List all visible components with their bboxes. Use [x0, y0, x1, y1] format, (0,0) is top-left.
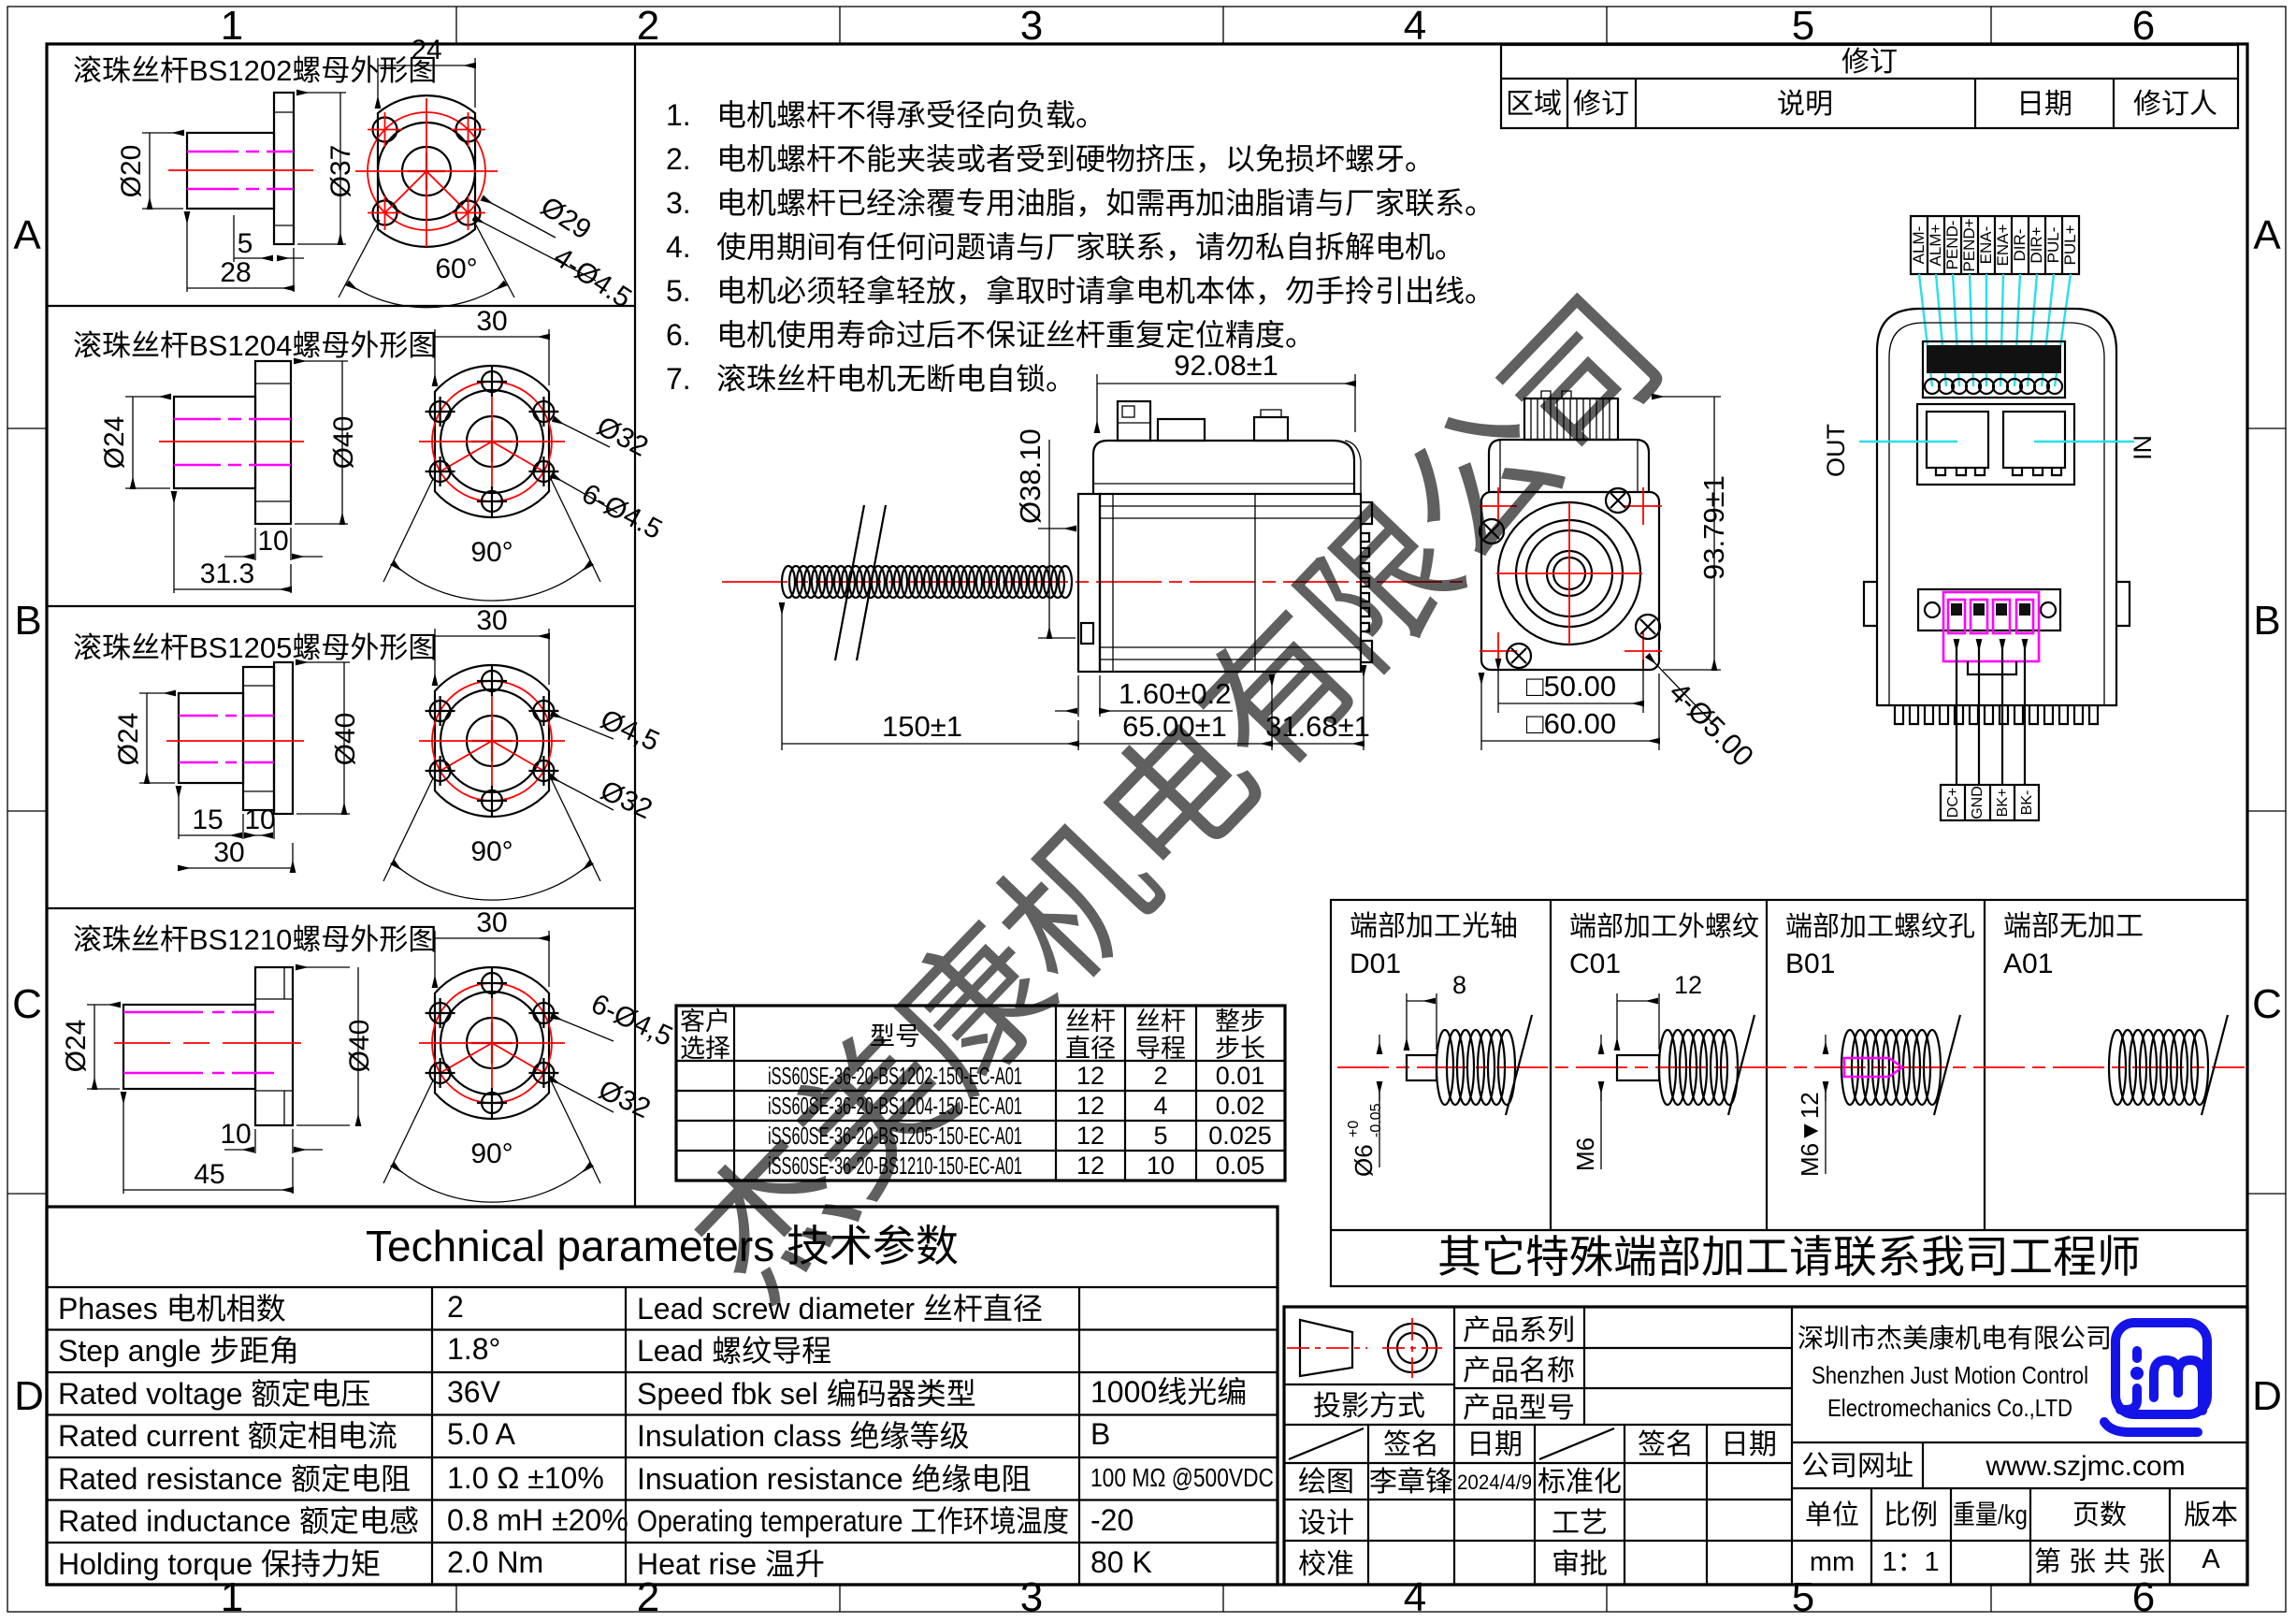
svg-text:ALM+: ALM+ — [1927, 224, 1944, 266]
svg-text:Ø40: Ø40 — [330, 713, 361, 766]
svg-text:2: 2 — [637, 3, 659, 49]
svg-text:Rated resistance 额定电阻: Rated resistance 额定电阻 — [58, 1462, 411, 1496]
svg-text:电机必须轻拿轻放，拿取时请拿电机本体，勿手拎引出线。: 电机必须轻拿轻放，拿取时请拿电机本体，勿手拎引出线。 — [716, 274, 1495, 308]
svg-text:步长: 步长 — [1215, 1035, 1265, 1063]
svg-text:7.: 7. — [666, 362, 691, 396]
svg-text:5: 5 — [238, 228, 253, 259]
svg-text:Ø24: Ø24 — [99, 416, 130, 470]
svg-text:93.79±1: 93.79±1 — [1697, 475, 1730, 580]
svg-text:产品系列: 产品系列 — [1463, 1315, 1575, 1346]
svg-text:Step angle 步距角: Step angle 步距角 — [58, 1334, 299, 1368]
svg-text:5: 5 — [1792, 1574, 1814, 1620]
svg-text:92.08±1: 92.08±1 — [1174, 349, 1278, 382]
svg-text:工艺: 工艺 — [1552, 1508, 1608, 1539]
svg-text:滚珠丝杆电机无断电自锁。: 滚珠丝杆电机无断电自锁。 — [716, 362, 1076, 396]
svg-text:1000线光编: 1000线光编 — [1090, 1375, 1247, 1409]
svg-text:电机螺杆不能夹装或者受到硬物挤压，以免损坏螺牙。: 电机螺杆不能夹装或者受到硬物挤压，以免损坏螺牙。 — [716, 142, 1435, 176]
svg-text:日期: 日期 — [1466, 1429, 1523, 1460]
svg-text:5.0 A: 5.0 A — [447, 1417, 516, 1451]
svg-text:标准化: 标准化 — [1538, 1467, 1622, 1498]
svg-text:3: 3 — [1020, 1574, 1043, 1620]
svg-text:Ø6: Ø6 — [1350, 1144, 1378, 1177]
svg-text:Insulation class 绝缘等级: Insulation class 绝缘等级 — [637, 1419, 970, 1453]
svg-text:12: 12 — [1076, 1122, 1105, 1150]
svg-text:Operating temperature 工作环境温度: Operating temperature 工作环境温度 — [637, 1504, 1069, 1538]
svg-text:端部加工光轴: 端部加工光轴 — [1350, 911, 1518, 942]
svg-text:4: 4 — [1404, 1574, 1426, 1620]
svg-text:D01: D01 — [1350, 949, 1401, 979]
svg-text:www.szjmc.com: www.szjmc.com — [1985, 1451, 2185, 1482]
svg-text:10: 10 — [1147, 1152, 1175, 1180]
svg-text:公司网址: 公司网址 — [1801, 1451, 1913, 1482]
svg-text:DC+: DC+ — [1945, 788, 1961, 818]
svg-text:24: 24 — [411, 35, 441, 65]
svg-text:150±1: 150±1 — [882, 710, 962, 743]
svg-text:10: 10 — [244, 804, 275, 835]
svg-text:Speed fbk sel 编码器类型: Speed fbk sel 编码器类型 — [637, 1377, 976, 1411]
svg-text:滚珠丝杆BS1210螺母外形图: 滚珠丝杆BS1210螺母外形图 — [73, 923, 437, 956]
svg-text:ALM-: ALM- — [1910, 226, 1928, 265]
svg-text:端部加工外螺纹: 端部加工外螺纹 — [1569, 911, 1759, 942]
svg-text:Insuation resistance 绝缘电阻: Insuation resistance 绝缘电阻 — [637, 1462, 1032, 1496]
svg-text:DIR-: DIR- — [2011, 229, 2029, 262]
svg-text:2: 2 — [1153, 1062, 1167, 1090]
svg-text:Heat rise 温升: Heat rise 温升 — [637, 1547, 825, 1581]
svg-text:1：1: 1：1 — [1882, 1547, 1939, 1577]
svg-text:BK-: BK- — [2019, 790, 2035, 816]
svg-text:客户: 客户 — [680, 1007, 730, 1036]
svg-text:Electromechanics Co.,LTD: Electromechanics Co.,LTD — [1827, 1394, 2072, 1422]
svg-text:2: 2 — [447, 1290, 464, 1324]
svg-text:10: 10 — [220, 1119, 251, 1150]
svg-text:比例: 比例 — [1884, 1500, 1938, 1530]
svg-text:1.: 1. — [666, 98, 691, 132]
svg-text:Ø38.10: Ø38.10 — [1014, 428, 1047, 524]
svg-text:审批: 审批 — [1552, 1549, 1608, 1580]
svg-text:GND: GND — [1970, 786, 1986, 819]
svg-text:12: 12 — [1076, 1152, 1105, 1180]
svg-text:修订: 修订 — [1573, 89, 1629, 120]
svg-text:PEND+: PEND+ — [1960, 218, 1978, 271]
svg-text:说明: 说明 — [1777, 89, 1833, 120]
svg-text:□50.00: □50.00 — [1526, 670, 1616, 703]
svg-text:36V: 36V — [447, 1375, 501, 1409]
svg-text:60°: 60° — [435, 254, 477, 284]
svg-text:0.01: 0.01 — [1216, 1062, 1265, 1090]
svg-text:1.8°: 1.8° — [447, 1332, 500, 1366]
svg-text:90°: 90° — [470, 537, 513, 568]
svg-text:C01: C01 — [1569, 949, 1621, 979]
svg-text:0.02: 0.02 — [1216, 1092, 1265, 1120]
svg-text:Ø37: Ø37 — [325, 145, 356, 198]
svg-text:DIR+: DIR+ — [2028, 226, 2045, 263]
svg-text:5: 5 — [1792, 3, 1814, 49]
svg-text:滚珠丝杆BS1205螺母外形图: 滚珠丝杆BS1205螺母外形图 — [73, 631, 437, 664]
svg-text:10: 10 — [257, 526, 288, 557]
svg-text:页数: 页数 — [2072, 1500, 2127, 1530]
svg-text:李章锋: 李章锋 — [1369, 1467, 1453, 1498]
svg-text:BK+: BK+ — [1995, 789, 2011, 818]
svg-text:深圳市杰美康机电有限公司: 深圳市杰美康机电有限公司 — [1798, 1324, 2112, 1353]
svg-text:Rated inductance 额定电感: Rated inductance 额定电感 — [58, 1504, 419, 1538]
svg-text:45: 45 — [194, 1159, 224, 1190]
svg-text:100 MΩ @500VDC: 100 MΩ @500VDC — [1090, 1463, 1274, 1492]
svg-text:5.: 5. — [666, 274, 691, 308]
svg-text:Ø24: Ø24 — [61, 1020, 92, 1073]
svg-text:2.: 2. — [666, 142, 691, 176]
svg-text:签名: 签名 — [1638, 1429, 1694, 1460]
svg-text:电机螺杆不得承受径向负载。: 电机螺杆不得承受径向负载。 — [716, 98, 1105, 132]
svg-text:4: 4 — [1153, 1092, 1167, 1120]
svg-text:滚珠丝杆BS1202螺母外形图: 滚珠丝杆BS1202螺母外形图 — [73, 54, 437, 87]
svg-text:30: 30 — [213, 837, 244, 868]
svg-text:A: A — [13, 212, 41, 258]
svg-text:C: C — [2252, 981, 2282, 1027]
svg-text:5: 5 — [1153, 1122, 1167, 1150]
svg-text:B: B — [14, 598, 41, 644]
svg-text:-0.05: -0.05 — [1368, 1103, 1384, 1138]
svg-text:1: 1 — [221, 1574, 243, 1620]
svg-text:Lead 螺纹导程: Lead 螺纹导程 — [637, 1334, 831, 1368]
svg-text:0.025: 0.025 — [1208, 1122, 1272, 1150]
svg-text:mm: mm — [1810, 1547, 1855, 1577]
svg-text:15: 15 — [192, 804, 223, 835]
svg-text:B: B — [2253, 598, 2280, 644]
svg-text:B: B — [1090, 1417, 1110, 1451]
svg-text:-20: -20 — [1090, 1503, 1134, 1537]
svg-text:投影方式: 投影方式 — [1313, 1391, 1425, 1422]
svg-text:日期: 日期 — [1721, 1429, 1777, 1460]
svg-text:设计: 设计 — [1298, 1508, 1354, 1539]
svg-text:产品型号: 产品型号 — [1463, 1393, 1575, 1424]
svg-text:Ø24: Ø24 — [113, 713, 144, 766]
svg-text:校准: 校准 — [1298, 1549, 1354, 1580]
svg-text:+0: +0 — [1346, 1121, 1362, 1138]
svg-text:6: 6 — [2132, 1574, 2155, 1620]
svg-text:修订人: 修订人 — [2133, 89, 2217, 120]
svg-text:30: 30 — [476, 907, 507, 938]
svg-text:2: 2 — [637, 1574, 659, 1620]
svg-text:12: 12 — [1076, 1062, 1105, 1090]
svg-text:丝杆: 丝杆 — [1135, 1007, 1186, 1036]
svg-text:ENA+: ENA+ — [1994, 224, 2012, 266]
svg-text:Phases 电机相数: Phases 电机相数 — [58, 1292, 286, 1326]
svg-text:M6: M6 — [1571, 1138, 1599, 1171]
svg-text:OUT: OUT — [1822, 424, 1850, 477]
svg-text:2.0 Nm: 2.0 Nm — [447, 1545, 543, 1579]
svg-text:其它特殊端部加工请联系我司工程师: 其它特殊端部加工请联系我司工程师 — [1437, 1232, 2141, 1282]
svg-text:1: 1 — [221, 3, 243, 49]
svg-text:Rated voltage 额定电压: Rated voltage 额定电压 — [58, 1377, 370, 1411]
svg-text:绘图: 绘图 — [1298, 1467, 1354, 1498]
svg-text:0.8 mH ±20%: 0.8 mH ±20% — [447, 1503, 628, 1537]
svg-text:导程: 导程 — [1135, 1035, 1186, 1063]
svg-text:C: C — [12, 981, 42, 1027]
svg-text:A01: A01 — [2003, 949, 2053, 979]
svg-text:Ø20: Ø20 — [116, 145, 147, 198]
svg-text:区域: 区域 — [1506, 89, 1562, 120]
svg-text:单位: 单位 — [1805, 1500, 1859, 1530]
svg-text:使用期间有任何问题请与厂家联系，请勿私自拆解电机。: 使用期间有任何问题请与厂家联系，请勿私自拆解电机。 — [716, 230, 1465, 264]
svg-text:PEND-: PEND- — [1943, 221, 1961, 270]
svg-text:90°: 90° — [470, 1138, 513, 1169]
svg-text:签名: 签名 — [1383, 1429, 1439, 1460]
svg-text:端部无加工: 端部无加工 — [2003, 911, 2144, 942]
svg-text:4.: 4. — [666, 230, 691, 264]
svg-text:D: D — [2252, 1373, 2282, 1419]
svg-text:8: 8 — [1452, 971, 1466, 999]
svg-text:整步: 整步 — [1215, 1007, 1265, 1036]
svg-text:滚珠丝杆BS1204螺母外形图: 滚珠丝杆BS1204螺母外形图 — [73, 329, 437, 362]
svg-text:Shenzhen Just Motion Control: Shenzhen Just Motion Control — [1812, 1361, 2088, 1389]
svg-text:IN: IN — [2129, 435, 2157, 460]
svg-text:Lead screw diameter 丝杆直径: Lead screw diameter 丝杆直径 — [637, 1292, 1043, 1326]
svg-text:PUL-: PUL- — [2044, 227, 2062, 264]
svg-text:3.: 3. — [666, 186, 691, 220]
svg-text:12: 12 — [1076, 1092, 1105, 1120]
svg-text:修订: 修订 — [1841, 47, 1898, 78]
svg-text:12: 12 — [1674, 971, 1702, 999]
svg-text:M6▼12: M6▼12 — [1796, 1092, 1824, 1177]
svg-text:30: 30 — [476, 605, 507, 636]
svg-text:电机使用寿命过后不保证丝杆重复定位精度。: 电机使用寿命过后不保证丝杆重复定位精度。 — [716, 318, 1315, 352]
svg-text:重量/kg: 重量/kg — [1953, 1500, 2028, 1530]
svg-text:6.: 6. — [666, 318, 691, 352]
svg-text:□60.00: □60.00 — [1526, 707, 1616, 740]
svg-text:D: D — [14, 1373, 44, 1419]
svg-text:版本: 版本 — [2184, 1500, 2238, 1530]
svg-text:2024/4/9: 2024/4/9 — [1457, 1471, 1532, 1494]
svg-text:6: 6 — [2132, 3, 2155, 49]
svg-text:80 K: 80 K — [1090, 1545, 1152, 1579]
svg-text:电机螺杆已经涂覆专用油脂，如需再加油脂请与厂家联系。: 电机螺杆已经涂覆专用油脂，如需再加油脂请与厂家联系。 — [716, 186, 1495, 220]
svg-text:0.05: 0.05 — [1216, 1152, 1265, 1180]
svg-text:4: 4 — [1404, 3, 1426, 49]
svg-text:Rated current 额定相电流: Rated current 额定相电流 — [58, 1419, 397, 1453]
svg-text:端部加工螺纹孔: 端部加工螺纹孔 — [1785, 911, 1975, 942]
svg-text:A: A — [2202, 1544, 2220, 1574]
svg-text:Ø40: Ø40 — [328, 416, 359, 470]
svg-text:3: 3 — [1020, 3, 1043, 49]
svg-text:A: A — [2253, 212, 2281, 258]
svg-text:Ø40: Ø40 — [344, 1020, 375, 1073]
svg-text:Holding torque 保持力矩: Holding torque 保持力矩 — [58, 1547, 381, 1581]
svg-text:直径: 直径 — [1065, 1035, 1116, 1063]
svg-text:选择: 选择 — [680, 1035, 730, 1063]
svg-text:第 张 共 张: 第 张 共 张 — [2034, 1546, 2165, 1577]
svg-text:28: 28 — [220, 257, 251, 288]
svg-text:B01: B01 — [1785, 949, 1835, 979]
svg-text:30: 30 — [476, 306, 507, 337]
svg-text:ENA-: ENA- — [1977, 226, 1995, 265]
svg-text:日期: 日期 — [2016, 89, 2072, 120]
svg-text:1.0 Ω ±10%: 1.0 Ω ±10% — [447, 1461, 604, 1495]
svg-text:产品名称: 产品名称 — [1463, 1355, 1575, 1386]
svg-text:31.3: 31.3 — [200, 558, 254, 589]
svg-text:PUL+: PUL+ — [2061, 225, 2079, 265]
svg-text:90°: 90° — [470, 836, 513, 867]
